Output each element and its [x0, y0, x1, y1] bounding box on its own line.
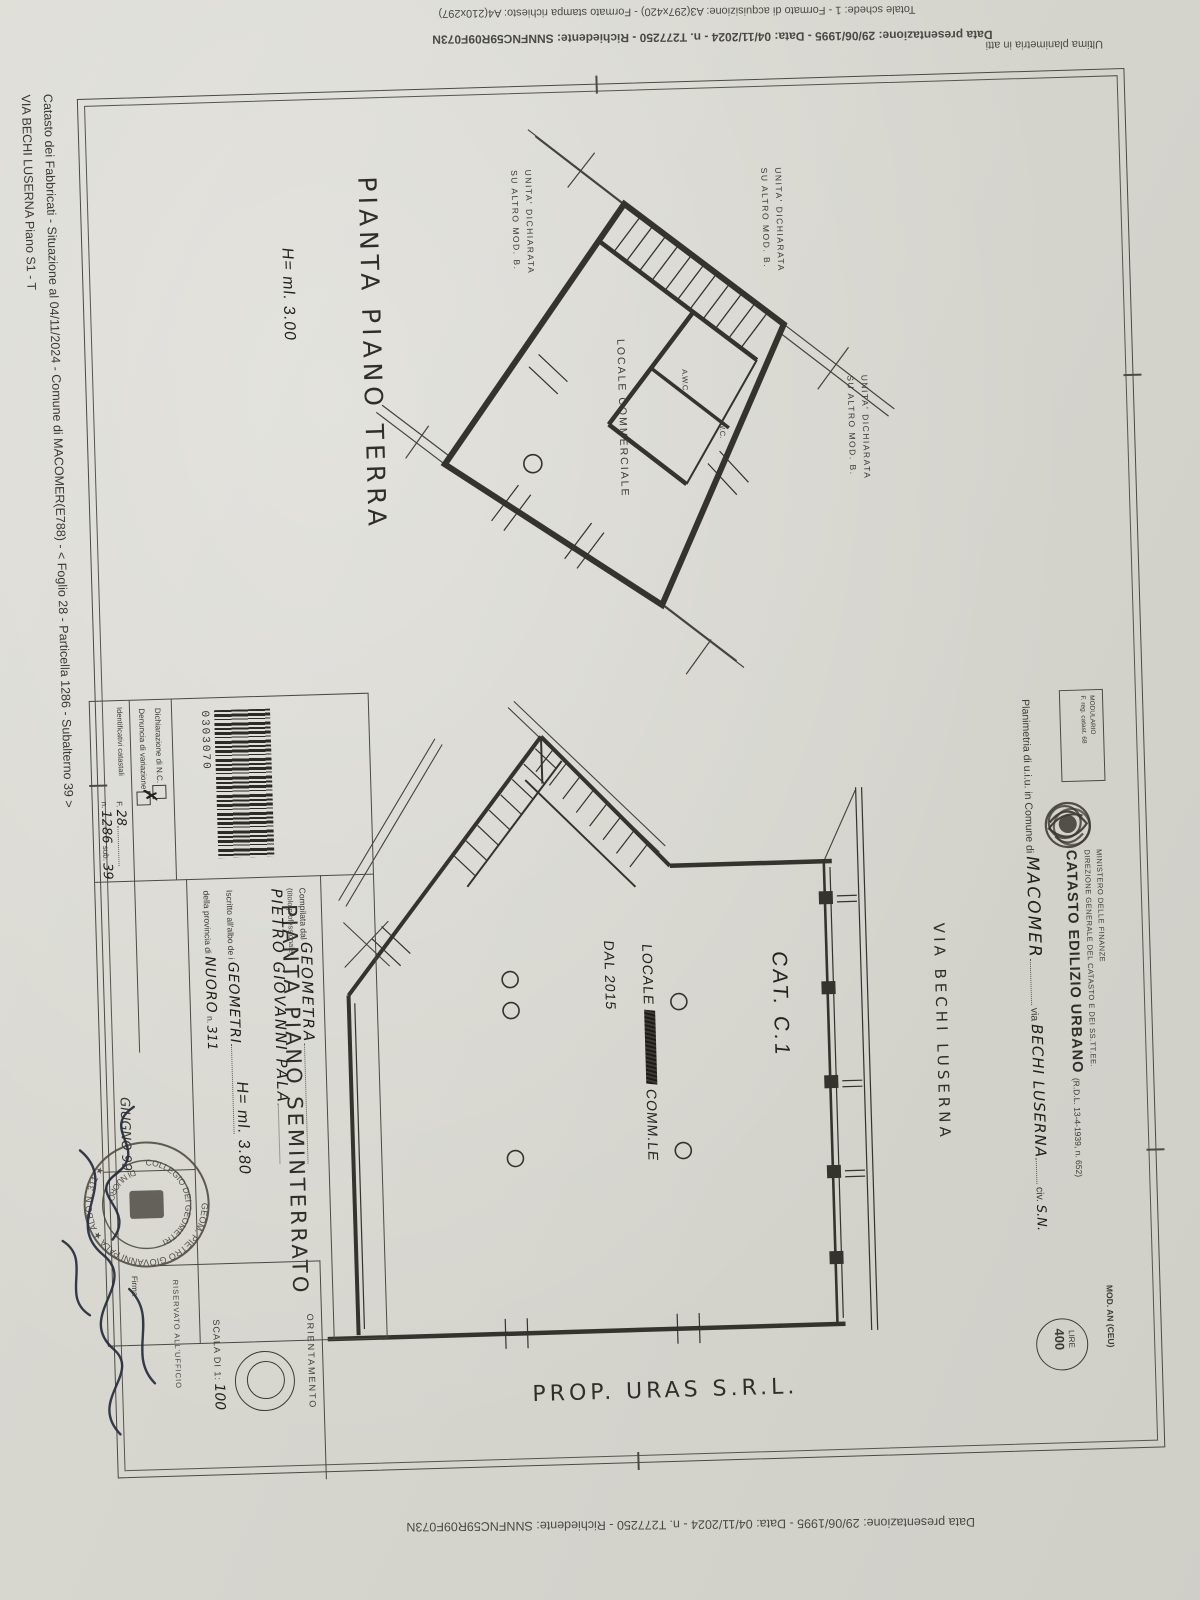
- terra-unita-label-3b: SU ALTRO MOD. B.: [845, 375, 858, 476]
- sub-label: sub.: [101, 846, 110, 861]
- scala-value: 100: [211, 1383, 228, 1410]
- margin-side-indirizzo-line: VIA BECHI LUSERNA Piano S1 - T: [19, 94, 39, 290]
- denuncia-label: Denuncia di variazione: [137, 708, 148, 789]
- handwritten-cat-c1: CAT. C.1: [766, 950, 793, 1059]
- handwritten-commle: COMM.LE: [643, 1088, 661, 1162]
- barcode: [214, 709, 274, 859]
- scala-label: SCALA DI 1:: [211, 1319, 223, 1381]
- scanned-paper: Totale schede: 1 - Formato di acquisizio…: [0, 0, 1200, 1600]
- border-tick-right-lower: [1146, 1148, 1164, 1150]
- mod-an-label: MOD. AN (CEU): [1104, 1285, 1116, 1348]
- albo-num-label: n.: [205, 1016, 215, 1023]
- terra-unita-label-1a: UNITA' DICHIARATA: [523, 170, 536, 275]
- denuncia-checkbox: ✗: [137, 791, 151, 805]
- handwritten-locale: LOCALE: [639, 943, 657, 1006]
- dotted-fill: [1036, 1158, 1049, 1184]
- orientamento-compass-inner: [246, 1360, 285, 1399]
- foglio-label: F.: [115, 801, 124, 807]
- via-label: via: [1028, 1008, 1040, 1022]
- margin-top-format-line: Totale schede: 1 - Formato di acquisizio…: [438, 3, 915, 19]
- via-value: BECHI LUSERNA: [1028, 1024, 1050, 1158]
- checkbox-x-mark: ✗: [140, 787, 156, 803]
- orientamento-label: ORIENTAMENTO: [305, 1314, 318, 1410]
- compilata-value: GEOMETRA: [297, 942, 318, 1044]
- planimetria-label: Planimetria di u.i.u. in Comune di: [1019, 699, 1036, 853]
- margin-top-ultima-line: Ultima planimetria in atti: [986, 38, 1103, 51]
- provincia-label: della provincia di: [201, 890, 213, 954]
- modulario-label: MODULARIO: [1088, 695, 1096, 735]
- num-label: n.: [100, 801, 109, 808]
- terra-height-note: H= ml. 3.00: [277, 247, 298, 342]
- civ-value: S.N.: [1033, 1205, 1049, 1232]
- margin-side-catasto-line: Catasto dei Fabbricati - Situazione al 0…: [41, 94, 76, 808]
- border-tick-right-upper: [1123, 374, 1141, 376]
- foglio-value: 28: [113, 809, 128, 826]
- compilata-label: Compilata dal: [297, 888, 309, 940]
- modulario-box: MODULARIO F. reg. catast. 68: [1059, 689, 1106, 782]
- surveyor-signature: [38, 1087, 199, 1471]
- catasto-edilizio-ref: (R.D.L. 13-4-1939, n. 652): [1071, 1078, 1084, 1177]
- state-emblem-stamp: [1034, 791, 1102, 859]
- provincia-value: NUORO: [201, 956, 219, 1014]
- identificativi-label: Identificativi catastali: [115, 707, 126, 776]
- barcode-number: 0303070: [198, 710, 212, 771]
- terra-unita-label-2a: UNITA' DICHIARATA: [773, 167, 786, 272]
- terra-unita-label-1b: SU ALTRO MOD. B.: [509, 170, 522, 271]
- lire-value: 400: [1052, 1328, 1068, 1350]
- margin-bottom-presentazione-line: Data presentazione: 29/06/1995 - Data: 0…: [406, 1515, 975, 1534]
- terra-awc-label: A.W.C.: [680, 369, 690, 393]
- margin-top-presentazione-line: Data presentazione: 29/06/1995 - Data: 0…: [432, 28, 992, 47]
- comune-value: MACOMER: [1022, 856, 1045, 959]
- photo-of-cadastral-plan: Totale schede: 1 - Formato di acquisizio…: [0, 0, 1200, 1600]
- terra-unita-label-2b: SU ALTRO MOD. B.: [759, 168, 772, 269]
- terra-wc-label: W.C.: [718, 422, 727, 439]
- scribbled-out-word: [644, 1010, 657, 1085]
- albo-num-value: 311: [203, 1025, 219, 1050]
- orientamento-compass-outer: [234, 1350, 296, 1412]
- dotted-fill: [1030, 959, 1043, 1005]
- iscritto-label: Iscritto all'albo de i: [224, 890, 236, 960]
- lire-label: LIRE: [1067, 1330, 1077, 1348]
- modulario-sub: F. reg. catast. 68: [1079, 695, 1087, 743]
- civ-label: civ.: [1034, 1187, 1046, 1202]
- dichiarazione-label: Dichiarazione di N.C.: [153, 708, 164, 783]
- border-tick-top: [595, 76, 597, 94]
- num-value: 1286: [98, 810, 114, 844]
- handwritten-dal-2015: DAL 2015: [601, 940, 619, 1011]
- terra-unita-label-3a: UNITA' DICHIARATA: [859, 375, 872, 480]
- sub-value: 39: [100, 863, 115, 880]
- albo-value: GEOMETRI: [224, 962, 242, 1044]
- floor-plan-terra-drawing: [380, 106, 917, 711]
